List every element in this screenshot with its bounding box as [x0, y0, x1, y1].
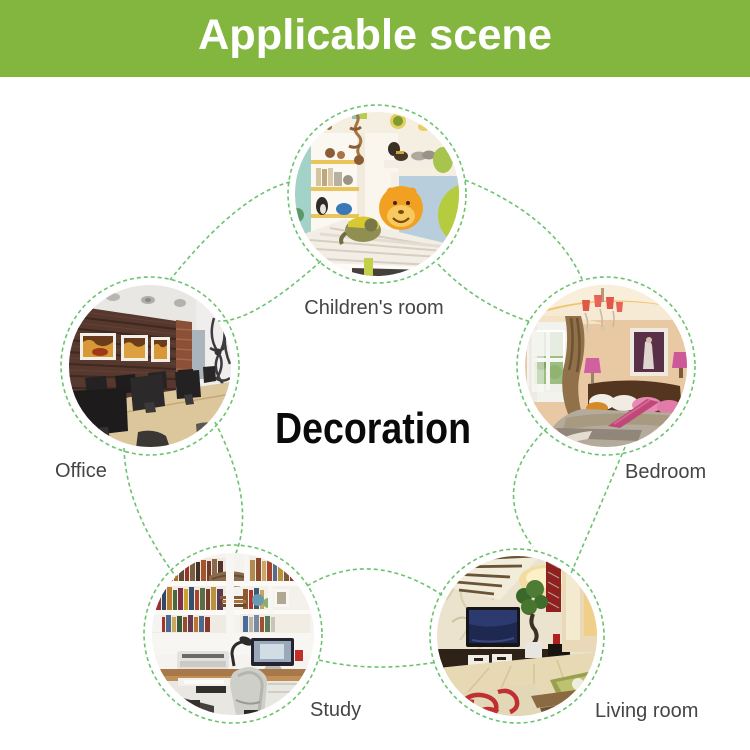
svg-text:Bedroom: Bedroom — [625, 461, 706, 483]
svg-text:Decoration: Decoration — [275, 404, 471, 453]
svg-text:Study: Study — [310, 699, 361, 721]
svg-text:Children's room: Children's room — [304, 297, 443, 319]
svg-text:Office: Office — [55, 460, 107, 482]
svg-text:Living room: Living room — [595, 700, 698, 722]
svg-text:Applicable scene: Applicable scene — [198, 11, 552, 59]
